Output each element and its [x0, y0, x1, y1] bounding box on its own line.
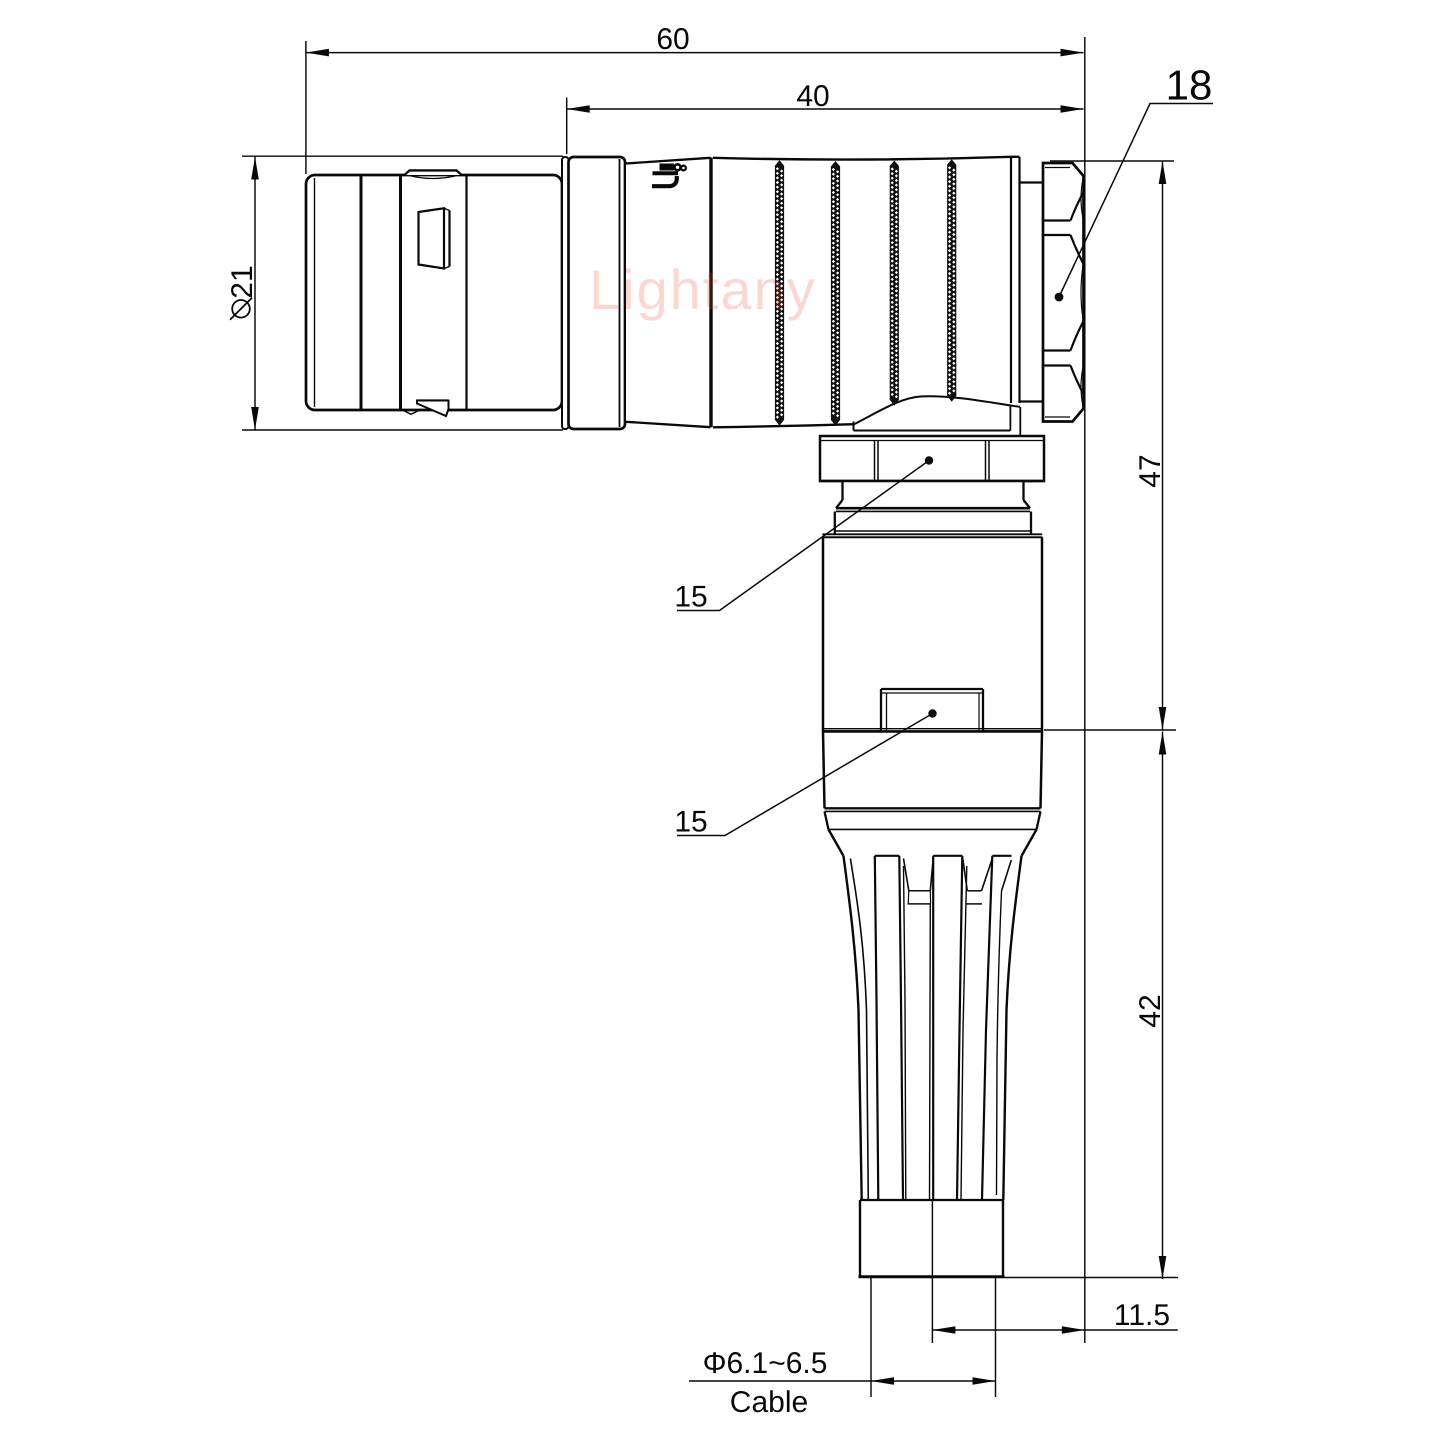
- svg-text:15: 15: [674, 581, 707, 614]
- svg-text:18: 18: [1166, 62, 1213, 109]
- svg-text:15: 15: [674, 806, 707, 839]
- svg-text:11.5: 11.5: [1114, 1299, 1170, 1332]
- svg-text:60: 60: [656, 23, 689, 56]
- svg-text:42: 42: [1134, 994, 1167, 1027]
- svg-text:21: 21: [226, 265, 259, 298]
- svg-text:47: 47: [1134, 454, 1167, 487]
- svg-text:40: 40: [796, 80, 829, 113]
- svg-text:Lightany: Lightany: [589, 258, 817, 321]
- svg-text:Φ6.1~6.5: Φ6.1~6.5: [703, 1347, 828, 1380]
- svg-text:Cable: Cable: [730, 1386, 808, 1419]
